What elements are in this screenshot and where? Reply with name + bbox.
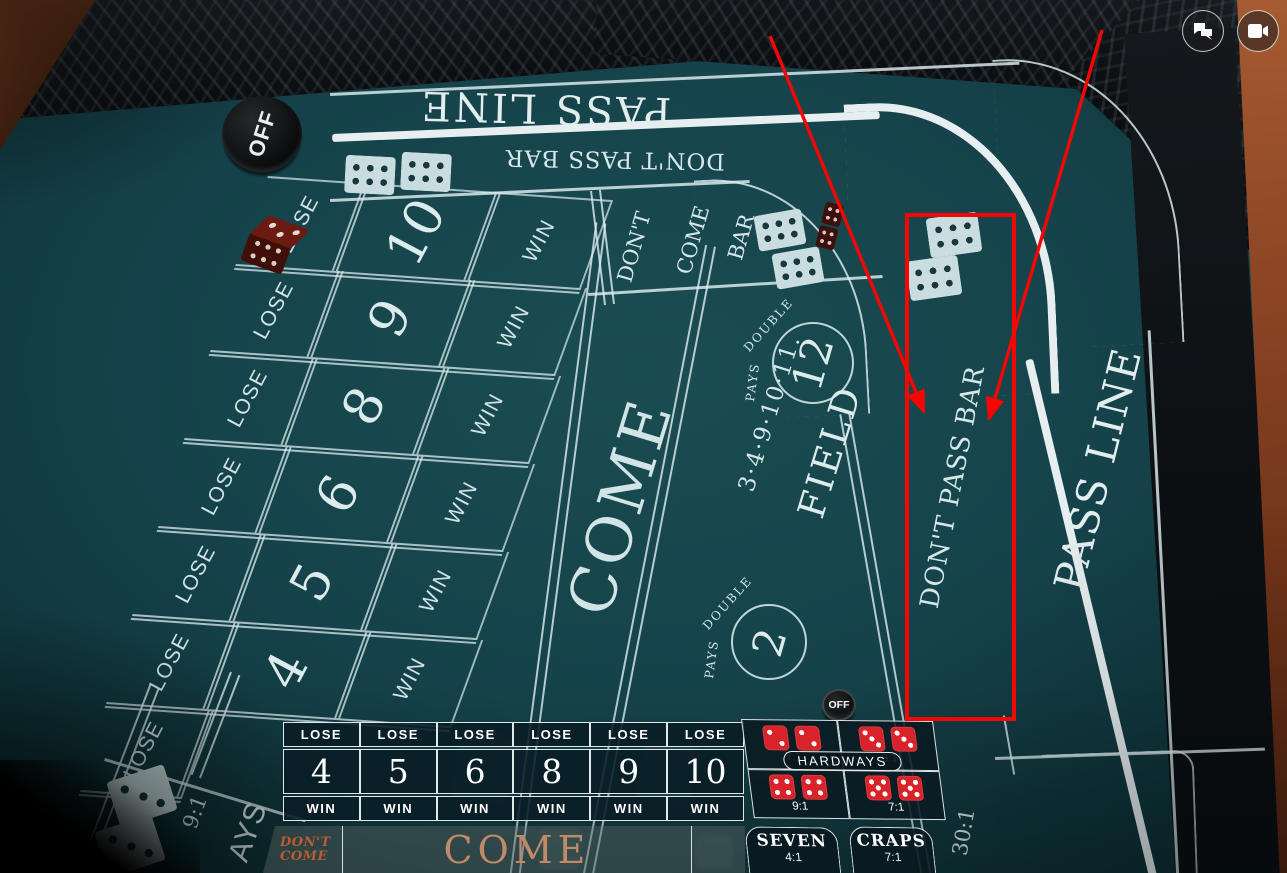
win-bet-cell[interactable]: WIN	[513, 796, 590, 821]
chat-button[interactable]	[1182, 10, 1224, 52]
dont-come-label: DON'T	[280, 836, 342, 850]
win-label: WIN	[415, 566, 457, 617]
payout-ratio: 7:1	[884, 850, 902, 864]
win-bet-cell[interactable]: WIN	[283, 796, 360, 821]
payout-ratio: 9:1	[792, 801, 810, 813]
lose-bet-cell[interactable]: LOSE	[437, 722, 514, 747]
dont-come-label: COME	[280, 850, 342, 864]
lose-bet-cell[interactable]: LOSE	[590, 722, 667, 747]
off-puck: OFF	[222, 96, 302, 172]
camera-button[interactable]	[1237, 10, 1279, 52]
bet-column-6: LOSE 6 WIN	[437, 722, 514, 821]
point-number: 6	[305, 466, 374, 523]
die-icon	[864, 776, 892, 801]
lose-label: LOSE	[249, 277, 299, 343]
come-strip-tail	[692, 826, 745, 873]
lose-bet-cell[interactable]: LOSE	[667, 722, 744, 747]
hardway-10-bet[interactable]: 7:1	[843, 770, 945, 821]
die-icon	[896, 776, 924, 801]
win-label: WIN	[441, 478, 483, 529]
come-bet-strip: DON'T COME COME	[263, 826, 745, 873]
win-label: WIN	[467, 390, 509, 441]
point-number: 8	[331, 378, 400, 435]
die-icon	[768, 775, 796, 800]
off-button-marker: OFF	[822, 689, 856, 721]
lose-bet-cell[interactable]: LOSE	[360, 722, 437, 747]
point-bet-cell[interactable]: 6	[437, 749, 514, 794]
point-number: 9	[357, 290, 426, 347]
bet-column-9: LOSE 9 WIN	[590, 722, 667, 821]
hardway-8-bet[interactable]: 9:1	[747, 769, 849, 820]
point-bet-cell[interactable]: 5	[360, 749, 437, 794]
shadow-corner	[0, 760, 200, 873]
highlight-rectangle	[905, 213, 1016, 721]
lose-label: LOSE	[171, 541, 221, 607]
come-bet-area[interactable]: COME	[343, 826, 692, 873]
win-label: WIN	[519, 215, 561, 266]
dice-icon	[400, 152, 452, 193]
win-bet-cell[interactable]: WIN	[360, 796, 437, 821]
die-icon	[761, 725, 789, 750]
lose-bet-cell[interactable]: LOSE	[283, 722, 360, 747]
bet-column-8: LOSE 8 WIN	[513, 722, 590, 821]
craps-label: CRAPS	[856, 832, 927, 851]
point-bet-cell[interactable]: 10	[667, 749, 744, 794]
die-icon	[800, 775, 828, 800]
craps-table-video-frame: PASS LINE DON'T PASS BAR LOSE 10 WIN LOS…	[0, 0, 1287, 873]
point-bet-cell[interactable]: 9	[590, 749, 667, 794]
seven-label: SEVEN	[756, 832, 828, 851]
bet-column-10: LOSE 10 WIN	[667, 722, 744, 821]
bet-column-4: LOSE 4 WIN	[283, 722, 360, 821]
lose-bet-cell[interactable]: LOSE	[513, 722, 590, 747]
come-label: COME	[444, 828, 591, 872]
win-bet-cell[interactable]: WIN	[590, 796, 667, 821]
dice-pair	[768, 775, 828, 801]
dice-icon	[344, 155, 396, 196]
win-label: WIN	[389, 654, 431, 705]
payout-ratio: 7:1	[888, 802, 906, 814]
win-bet-cell[interactable]: WIN	[667, 796, 744, 821]
point-number: 4	[253, 642, 322, 699]
die-icon	[889, 726, 917, 751]
point-bet-cell[interactable]: 4	[283, 749, 360, 794]
win-label: WIN	[493, 302, 535, 353]
point-bet-cell[interactable]: 8	[513, 749, 590, 794]
point-number: 5	[279, 554, 348, 611]
lose-label: LOSE	[145, 629, 195, 695]
dice-pair	[857, 726, 917, 752]
felt-line	[1042, 749, 1199, 873]
die-icon	[857, 726, 885, 751]
point-number: 10	[374, 189, 458, 276]
video-camera-icon	[1247, 23, 1269, 39]
dont-pass-bar-top-label: DON'T PASS BAR	[470, 143, 760, 174]
die-icon	[793, 725, 821, 750]
hardways-panel: 7:1 9:1 9:1 7:1 HARDWAYS	[741, 719, 946, 820]
bet-points-grid: LOSE 4 WIN LOSE 5 WIN LOSE 6 WIN LOSE 8 …	[283, 722, 744, 821]
seven-bet[interactable]: SEVEN 4:1	[744, 826, 842, 873]
dice-pair	[864, 776, 924, 802]
bet-column-5: LOSE 5 WIN	[360, 722, 437, 821]
lose-label: LOSE	[197, 453, 247, 519]
hardways-label: HARDWAYS	[782, 751, 902, 771]
dice-pair	[761, 725, 821, 751]
lose-label: LOSE	[223, 365, 273, 431]
win-bet-cell[interactable]: WIN	[437, 796, 514, 821]
field-two-circle: 2	[731, 604, 807, 680]
chat-bubbles-icon	[1192, 21, 1214, 41]
craps-bet[interactable]: CRAPS 7:1	[848, 826, 937, 873]
payout-ratio: 4:1	[784, 850, 802, 864]
dont-come-bet-area[interactable]: DON'T COME	[263, 826, 343, 873]
